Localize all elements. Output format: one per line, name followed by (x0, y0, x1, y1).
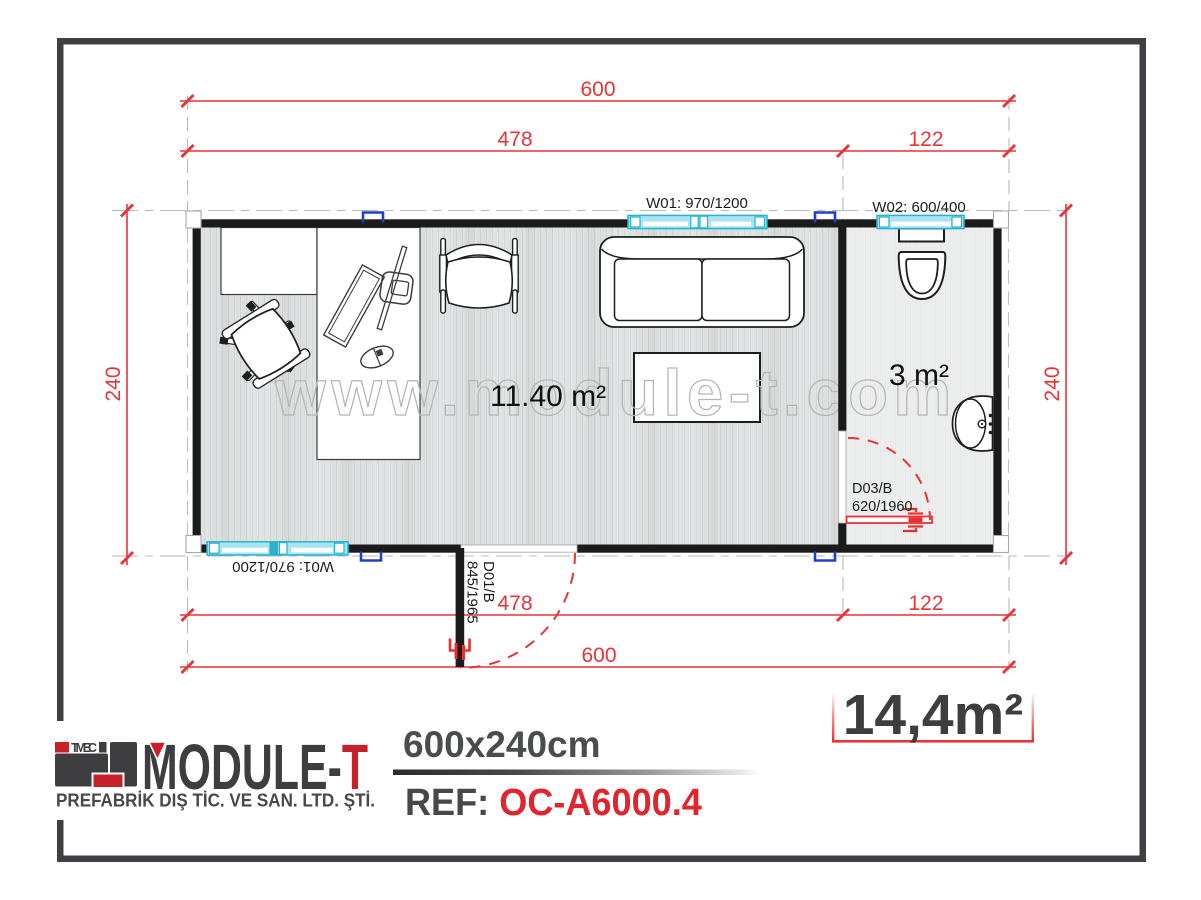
svg-text:600: 600 (580, 78, 615, 101)
svg-text:PREFABRİK DIŞ TİC. VE SAN. LTD: PREFABRİK DIŞ TİC. VE SAN. LTD. ŞTİ. (56, 791, 375, 811)
svg-text:W01: 970/1200: W01: 970/1200 (646, 195, 748, 212)
svg-text:W01: 970/1200: W01: 970/1200 (232, 558, 334, 575)
svg-text:478: 478 (497, 592, 532, 615)
svg-text:www.module-t.com: www.module-t.com (274, 356, 956, 429)
svg-text:3 m²: 3 m² (889, 359, 949, 392)
svg-text:620/1960: 620/1960 (852, 499, 912, 515)
svg-text:W02: 600/400: W02: 600/400 (872, 199, 965, 216)
svg-text:478: 478 (497, 128, 532, 151)
svg-text:D03/B: D03/B (852, 481, 892, 497)
svg-text:REF: OC-A6000.4: REF: OC-A6000.4 (405, 780, 702, 823)
svg-text:600: 600 (581, 644, 616, 667)
svg-text:TMEC: TMEC (71, 741, 97, 755)
svg-text:14,4m²: 14,4m² (843, 683, 1024, 747)
svg-text:240: 240 (1041, 366, 1064, 401)
svg-text:11.40 m²: 11.40 m² (490, 380, 606, 413)
svg-text:D01/B845/1965: D01/B845/1965 (464, 561, 498, 624)
svg-text:600x240cm: 600x240cm (403, 724, 601, 765)
svg-text:240: 240 (102, 366, 125, 401)
svg-text:122: 122 (908, 592, 943, 615)
svg-text:122: 122 (908, 128, 943, 151)
